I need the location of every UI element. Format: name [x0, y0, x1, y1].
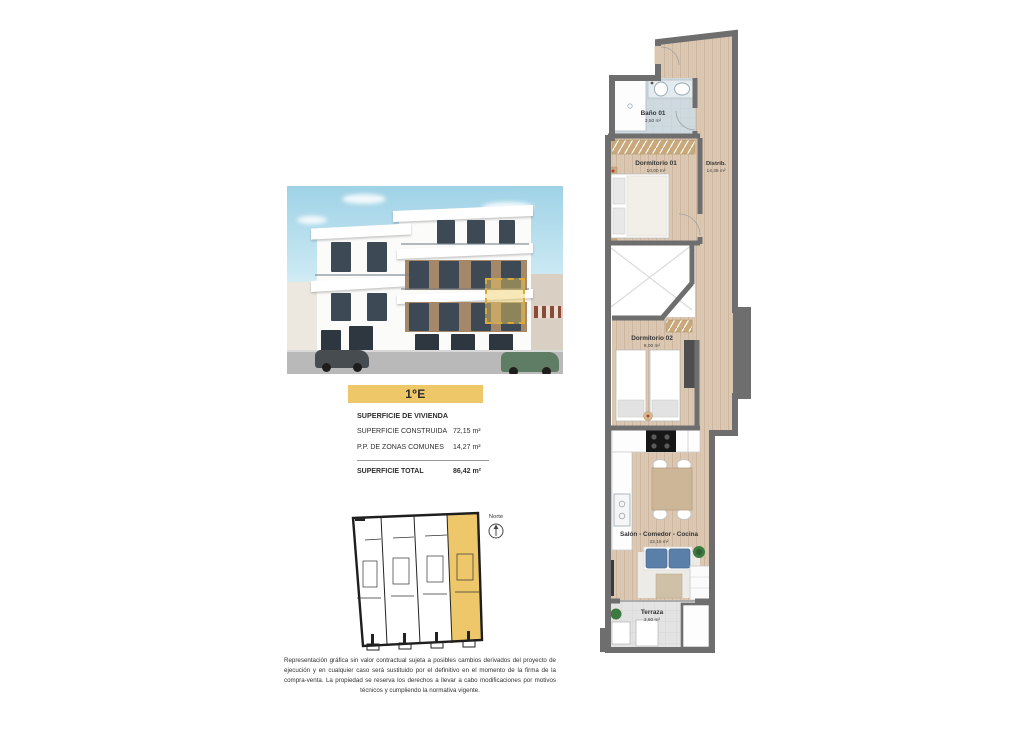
room-area: 10,00 m²: [647, 168, 666, 174]
surface-row-value: 14,27 m²: [453, 444, 489, 451]
duvet: [627, 176, 667, 236]
wardrobe-dormitorio1: [612, 140, 695, 154]
car-dark: [315, 350, 369, 368]
surface-total-value: 86,42 m²: [453, 468, 489, 475]
surface-row: P.P. DE ZONAS COMUNES 14,27 m²: [357, 444, 489, 451]
cloud: [342, 194, 386, 204]
awning: [534, 306, 561, 318]
terrace-table: [636, 620, 658, 646]
wardrobe-dormitorio2: [666, 320, 692, 332]
room-label: Baño 01: [641, 110, 666, 117]
terrace-chair: [612, 622, 630, 644]
adjacent-white-box: [682, 604, 710, 648]
entrance-opening: [655, 46, 662, 64]
window: [367, 293, 387, 321]
surface-total-label: SUPERFICIE TOTAL: [357, 468, 453, 475]
neighbor-building-left: [287, 282, 320, 354]
dining-table: [652, 468, 692, 510]
north-label: Norte: [489, 514, 503, 520]
divider: [357, 460, 489, 461]
highlighted-unit-box: [485, 278, 525, 324]
lamp-dot: [612, 170, 615, 173]
pillow: [652, 400, 678, 417]
plant: [611, 609, 622, 620]
pillow: [613, 178, 625, 204]
pillow: [613, 208, 625, 234]
surface-row-label: P.P. DE ZONAS COMUNES: [357, 444, 453, 451]
window: [331, 293, 351, 321]
ottoman: [656, 574, 682, 598]
room-area: 3,60 m²: [644, 617, 661, 623]
window: [437, 220, 455, 244]
compass-arrowhead: [494, 525, 499, 530]
surface-row-label: SUPERFICIE CONSTRUIDA: [357, 428, 453, 435]
kitchen-sink: [614, 494, 630, 526]
window: [409, 261, 429, 289]
toilet: [655, 82, 668, 96]
car-green: [501, 352, 559, 372]
room-label: Dormitorio 01: [635, 160, 677, 167]
plant-inner: [696, 549, 702, 555]
unit-banner: 1ºE: [348, 385, 483, 403]
window: [439, 303, 459, 331]
room-area: 8,00 m²: [644, 343, 661, 349]
surface-row: SUPERFICIE CONSTRUIDA 72,15 m²: [357, 428, 489, 435]
chaise-sofa: [690, 566, 710, 600]
room-label: Salón - Comedor - Cocina: [620, 531, 699, 538]
key-plan-highlighted-unit: [447, 513, 482, 643]
pillow: [618, 400, 644, 417]
room-label: Dormitorio 02: [631, 335, 673, 342]
surface-row-value: 72,15 m²: [453, 428, 489, 435]
room-label: Distrib.: [706, 161, 726, 167]
bath-fixture-dot: [651, 82, 654, 85]
closet-dark: [684, 340, 695, 388]
window: [439, 261, 459, 289]
brochure-page: 1ºE SUPERFICIE DE VIVIENDA SUPERFICIE CO…: [0, 0, 1024, 732]
room-area: 14,35 m²: [707, 168, 726, 174]
floor-plan: Baño 01 3,50 m² Dormitorio 01 10,00 m² D…: [600, 28, 775, 663]
key-plan: Norte: [343, 506, 515, 654]
building-rendering: [287, 186, 563, 374]
window: [499, 220, 515, 244]
wall-stub: [600, 628, 608, 652]
surface-title: SUPERFICIE DE VIVIENDA: [357, 411, 489, 420]
legal-disclaimer: Representación gráfica sin valor contrac…: [284, 656, 556, 696]
cloud: [297, 216, 327, 224]
railing: [401, 243, 529, 245]
room-area: 3,50 m²: [645, 118, 662, 124]
window: [467, 220, 485, 244]
window: [409, 303, 429, 331]
cooktop: [646, 430, 676, 452]
surface-total-row: SUPERFICIE TOTAL 86,42 m²: [357, 468, 489, 475]
lamp-dot: [647, 415, 650, 418]
surface-table: SUPERFICIE DE VIVIENDA SUPERFICIE CONSTR…: [357, 411, 489, 484]
washbasin: [675, 83, 690, 95]
window: [367, 242, 387, 272]
sofa-cushion-blue: [669, 549, 690, 568]
room-label: Terraza: [641, 609, 664, 616]
railing: [315, 274, 409, 276]
window: [331, 242, 351, 272]
sofa-cushion-blue: [646, 549, 667, 568]
room-area: 22,15 m²: [650, 539, 669, 545]
shower: [614, 80, 646, 131]
